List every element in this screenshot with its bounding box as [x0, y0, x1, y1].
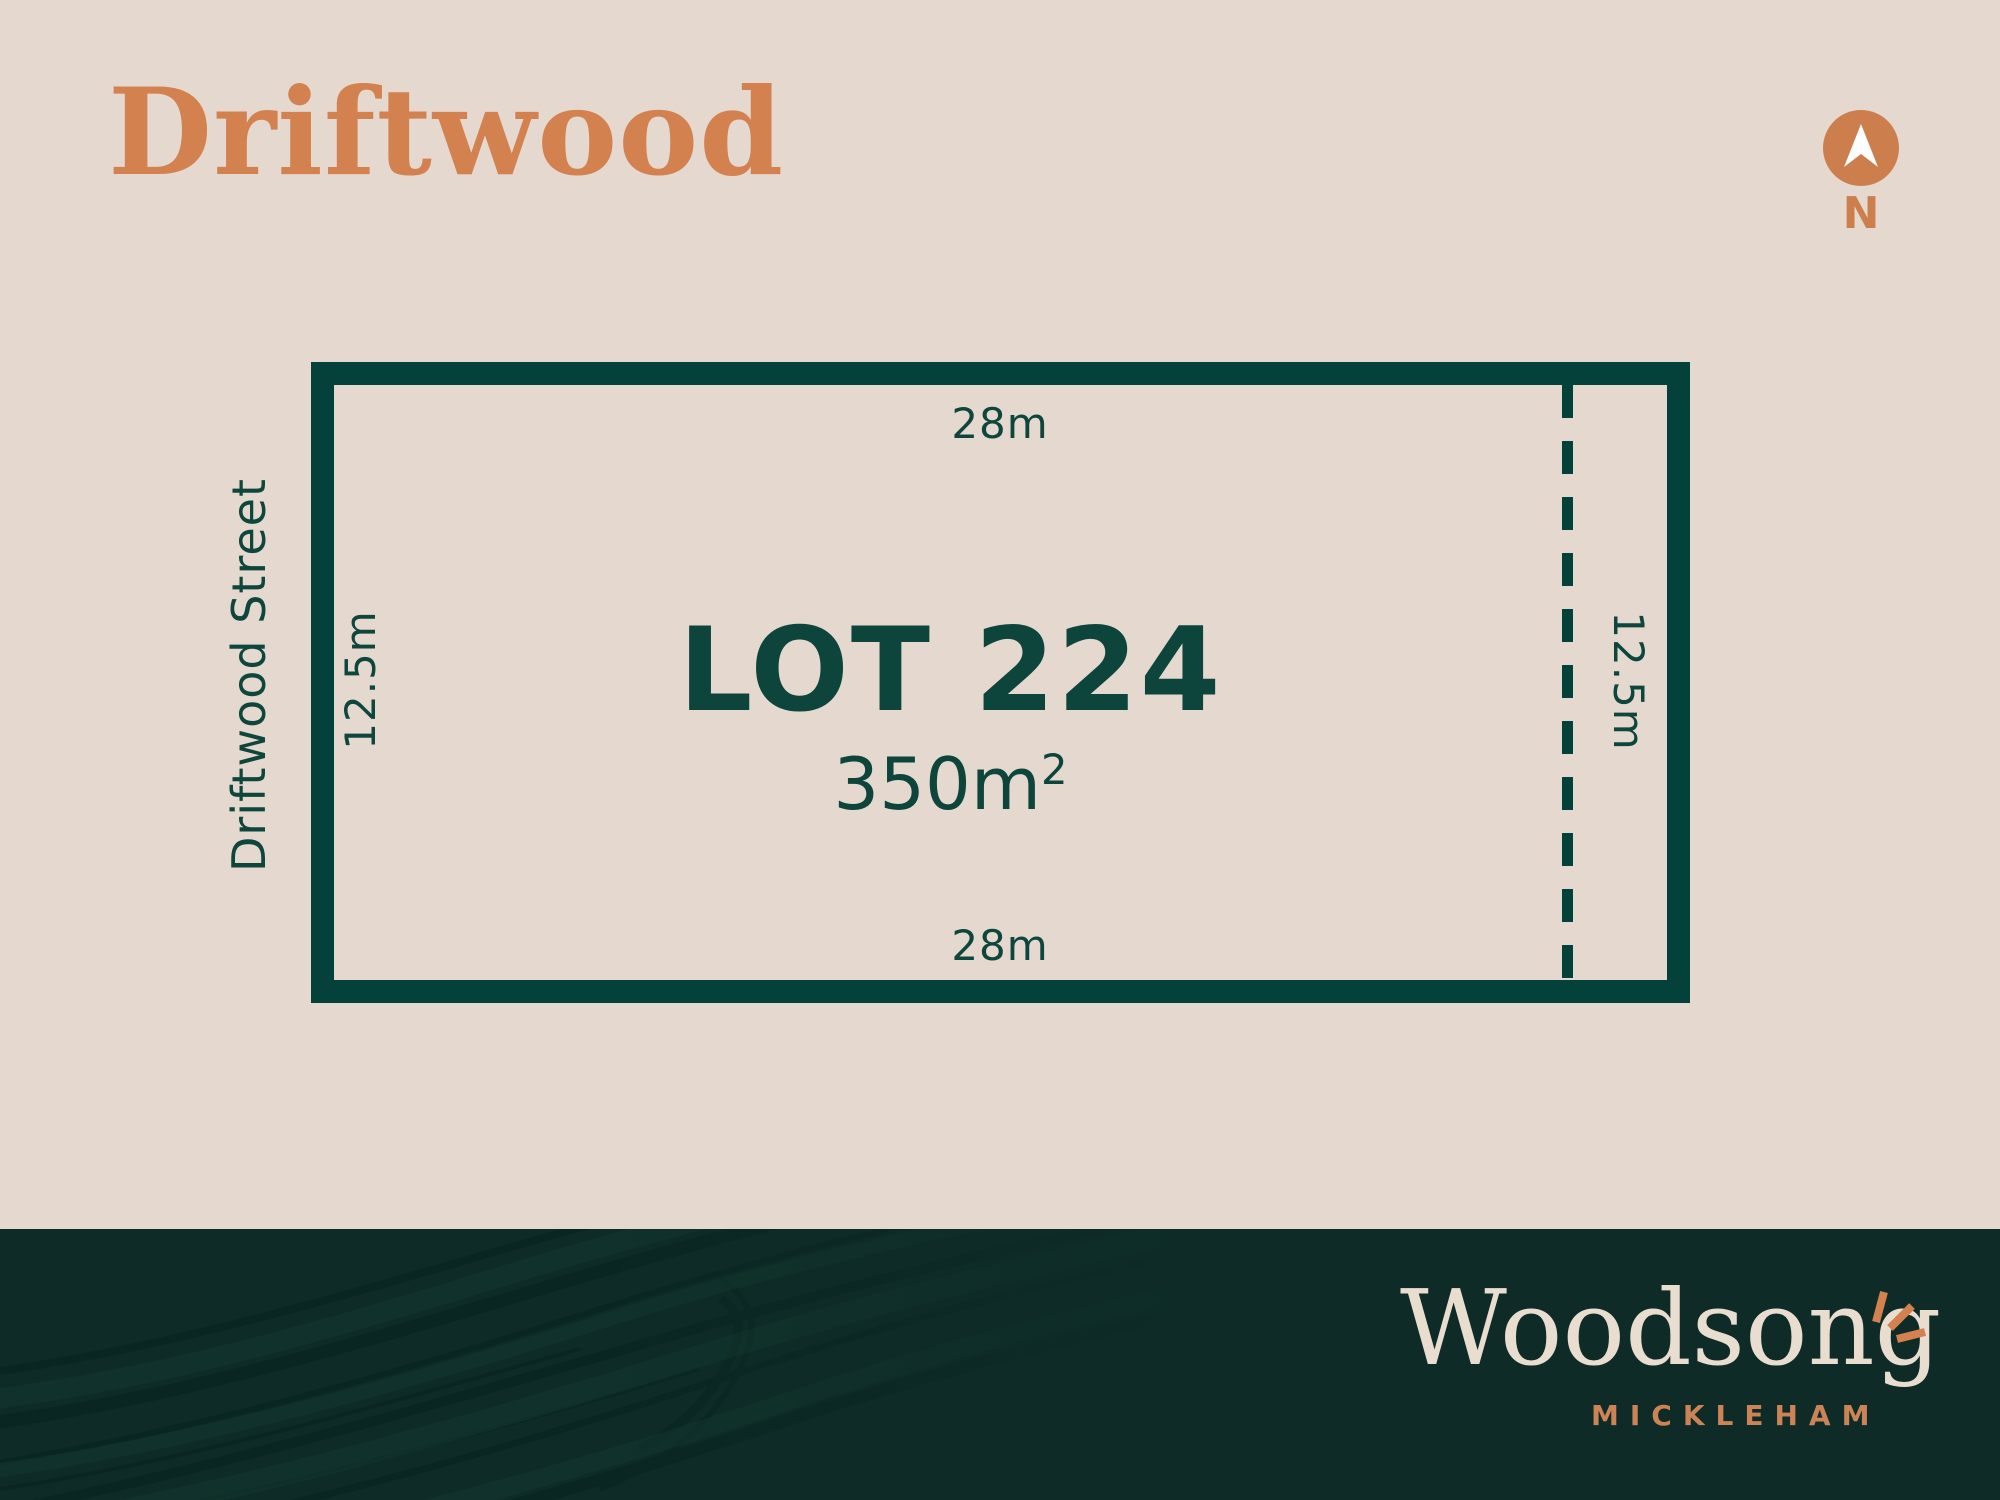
lot-info: LOT 224 350m2 [334, 604, 1567, 825]
dimension-bottom: 28m [900, 925, 1100, 967]
dimension-right: 12.5m [1607, 571, 1649, 791]
area-exponent: 2 [1041, 745, 1068, 794]
north-arrow-icon [1823, 110, 1899, 186]
brand-location: MICKLEHAM [1580, 1402, 1850, 1430]
lot-number: LOT 224 [334, 604, 1567, 737]
spark-icon [1866, 1286, 1926, 1346]
dimension-top: 28m [900, 403, 1100, 445]
north-compass: N [1823, 110, 1899, 236]
page-title: Driftwood [108, 70, 784, 196]
north-label: N [1823, 192, 1899, 236]
wood-grain-texture [0, 1229, 1210, 1500]
lot-flyer: Driftwood N Driftwood Street 28m 28m 12.… [0, 0, 2000, 1500]
street-name-label: Driftwood Street [226, 455, 272, 895]
brand-logo: Woodsong [1400, 1276, 1870, 1380]
lot-area: 350m2 [334, 745, 1567, 824]
